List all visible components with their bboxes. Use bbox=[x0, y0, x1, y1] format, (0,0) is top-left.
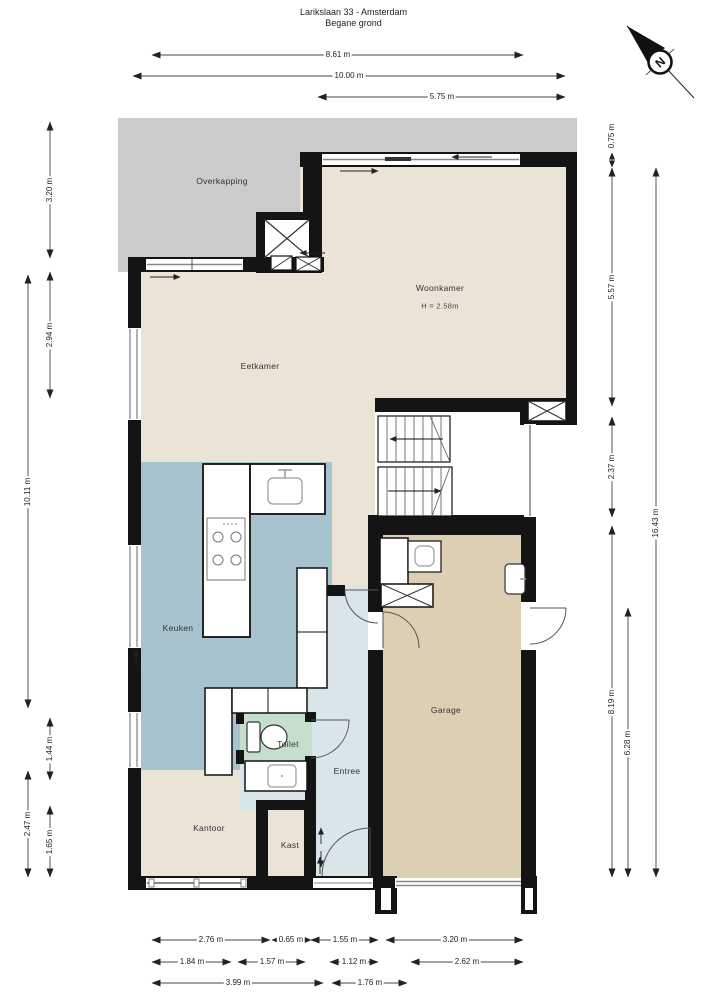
toilet-cabinet-tall bbox=[205, 688, 232, 775]
dim-right-5: 8.19 m bbox=[608, 688, 616, 716]
dim-right-2: 5.57 m bbox=[608, 273, 616, 301]
dim-bottom-4: 3.20 m bbox=[441, 936, 469, 944]
dim-bottom-9: 3.99 m bbox=[224, 979, 252, 987]
dim-bottom-1: 2.76 m bbox=[197, 936, 225, 944]
dim-bottom-8: 2.62 m bbox=[453, 958, 481, 966]
dim-right-1: 0.75 m bbox=[608, 122, 616, 150]
dim-left-2: 2.94 m bbox=[46, 321, 54, 349]
dim-left-1: 3.20 m bbox=[46, 176, 54, 204]
dim-bottom-5: 1.84 m bbox=[178, 958, 206, 966]
dim-top-1: 8.61 m bbox=[324, 51, 352, 59]
dim-right-6: 6.28 m bbox=[624, 729, 632, 757]
kitchen-sink-icon bbox=[268, 478, 302, 504]
room-label-eetkamer: Eetkamer bbox=[241, 361, 280, 371]
dim-right-3: 2.37 m bbox=[608, 453, 616, 481]
room-label-garage: Garage bbox=[431, 705, 461, 715]
garage-closet bbox=[380, 538, 408, 585]
dim-bottom-7: 1.12 m bbox=[340, 958, 368, 966]
room-label-kantoor: Kantoor bbox=[193, 823, 225, 833]
floor-plan-svg: N bbox=[0, 0, 707, 1000]
room-label-overkapping: Overkapping bbox=[196, 176, 248, 186]
room-label-woonkamer: Woonkamer bbox=[416, 283, 464, 293]
compass-icon: N bbox=[627, 26, 694, 98]
room-label-toilet: Toilet bbox=[277, 739, 299, 749]
cooktop-icon bbox=[207, 518, 245, 580]
dim-bottom-3: 1.55 m bbox=[331, 936, 359, 944]
plan-subtitle: Begane grond bbox=[0, 18, 707, 29]
dim-left-6: 1.65 m bbox=[46, 828, 54, 856]
dim-bottom-6: 1.57 m bbox=[258, 958, 286, 966]
room-label-kast: Kast bbox=[281, 840, 299, 850]
toilet-tank-icon bbox=[247, 722, 260, 752]
floor-plan-page: { "title": { "line1": "Larikslaan 33 - A… bbox=[0, 0, 707, 1000]
toilet-cabinet-row bbox=[232, 688, 307, 713]
dim-right-4: 16.43 m bbox=[652, 507, 660, 540]
room-label-keuken: Keuken bbox=[163, 623, 194, 633]
dim-top-2: 10.00 m bbox=[333, 72, 366, 80]
dim-left-3: 10.11 m bbox=[24, 476, 32, 508]
dim-bottom-10: 1.76 m bbox=[356, 979, 384, 987]
dim-left-5: 2.47 m bbox=[24, 810, 32, 838]
plan-title: Larikslaan 33 - Amsterdam bbox=[0, 7, 707, 18]
dim-bottom-2: 0.65 m bbox=[277, 936, 305, 944]
dim-left-4: 1.44 m bbox=[46, 735, 54, 763]
room-label-woonkamer-height: H = 2.58m bbox=[421, 302, 459, 311]
room-label-entree: Entree bbox=[334, 766, 361, 776]
hall-cabinets bbox=[297, 568, 327, 688]
dim-top-3: 5.75 m bbox=[428, 93, 456, 101]
